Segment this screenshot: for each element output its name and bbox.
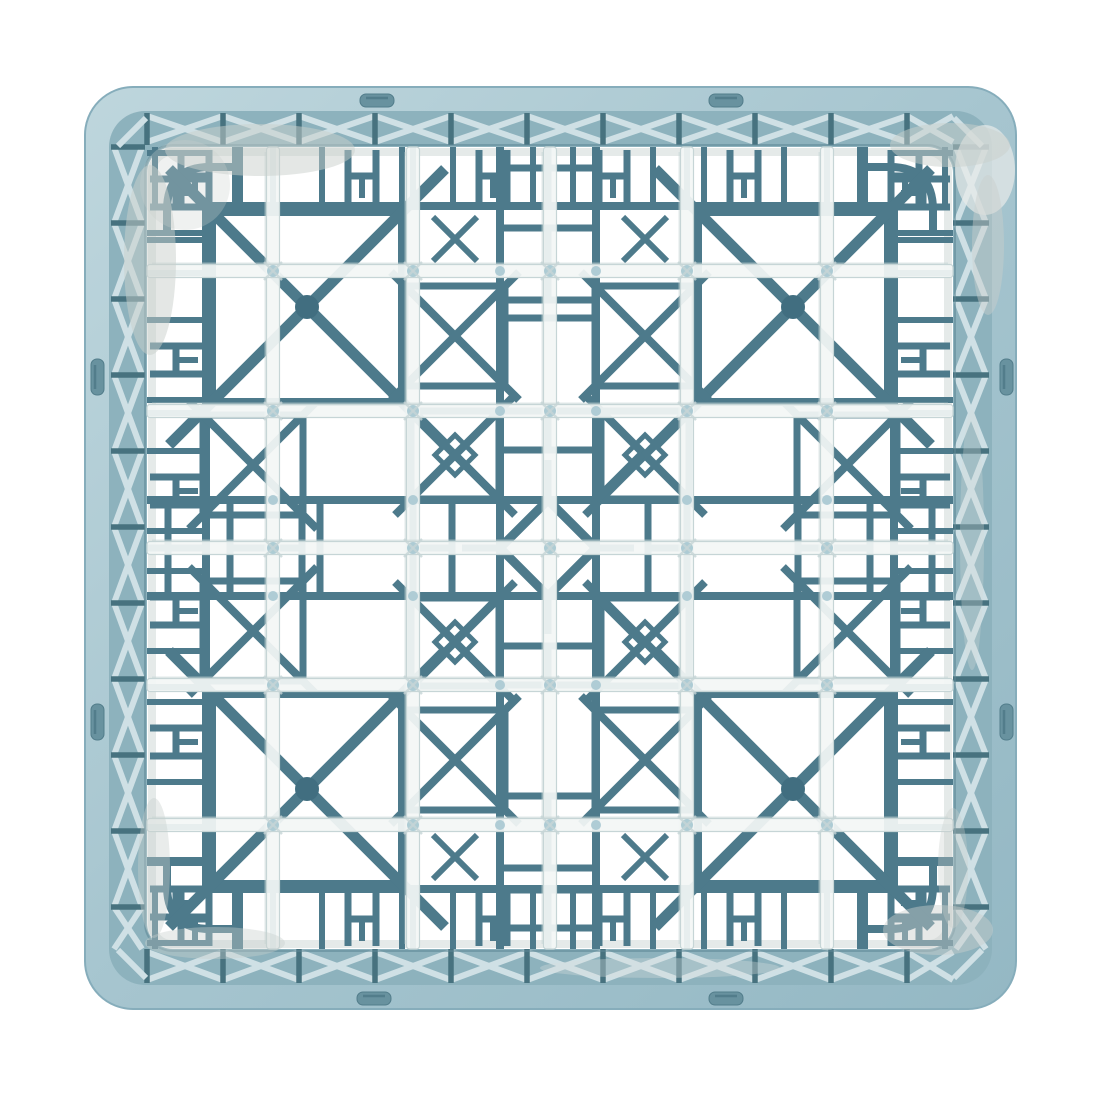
corner-sheen-tr	[972, 175, 1004, 315]
x-center-dot	[781, 295, 805, 319]
dish-rack-product-photo	[0, 0, 1100, 1100]
wall-rail-bump	[495, 406, 505, 416]
wall-rail-bump	[495, 266, 505, 276]
vent-slot	[1000, 359, 1013, 395]
wall-rail-bump	[591, 266, 601, 276]
corner-sheen-tr	[890, 123, 1010, 167]
rim-sheen-bottom	[540, 958, 780, 978]
wall-rail-bump	[682, 495, 692, 505]
wall-rail-bump	[591, 820, 601, 830]
vent-slot	[357, 992, 391, 1005]
wall-rail-bump	[682, 591, 692, 601]
x-center-dot	[781, 777, 805, 801]
wall-rail-bump	[408, 591, 418, 601]
vent-slot	[91, 359, 104, 395]
vent-slot	[360, 94, 394, 107]
wall-rail-bump	[268, 591, 278, 601]
x-center-dot	[295, 777, 319, 801]
corner-sheen-bl	[138, 798, 170, 938]
wall-rail-bump	[495, 820, 505, 830]
rim-sheen-right	[960, 410, 984, 670]
wall-rail-bump	[591, 406, 601, 416]
vent-slot	[91, 704, 104, 740]
vent-slot	[709, 992, 743, 1005]
wall-rail-bump	[408, 495, 418, 505]
wall-rail-bump	[822, 495, 832, 505]
wall-rail-bump	[495, 680, 505, 690]
wall-rail-bump	[268, 495, 278, 505]
corner-sheen-tl	[140, 140, 230, 230]
wall-rail-bump	[822, 591, 832, 601]
vent-slot	[709, 94, 743, 107]
corner-sheen-br	[883, 905, 993, 955]
x-center-dot	[295, 295, 319, 319]
dish-rack-scene	[0, 0, 1100, 1100]
divider-walls	[147, 147, 953, 949]
corner-sheen-bl	[145, 927, 285, 959]
wall-rail-bump	[591, 680, 601, 690]
corner-sheen-br	[938, 808, 968, 928]
vent-slot	[1000, 704, 1013, 740]
